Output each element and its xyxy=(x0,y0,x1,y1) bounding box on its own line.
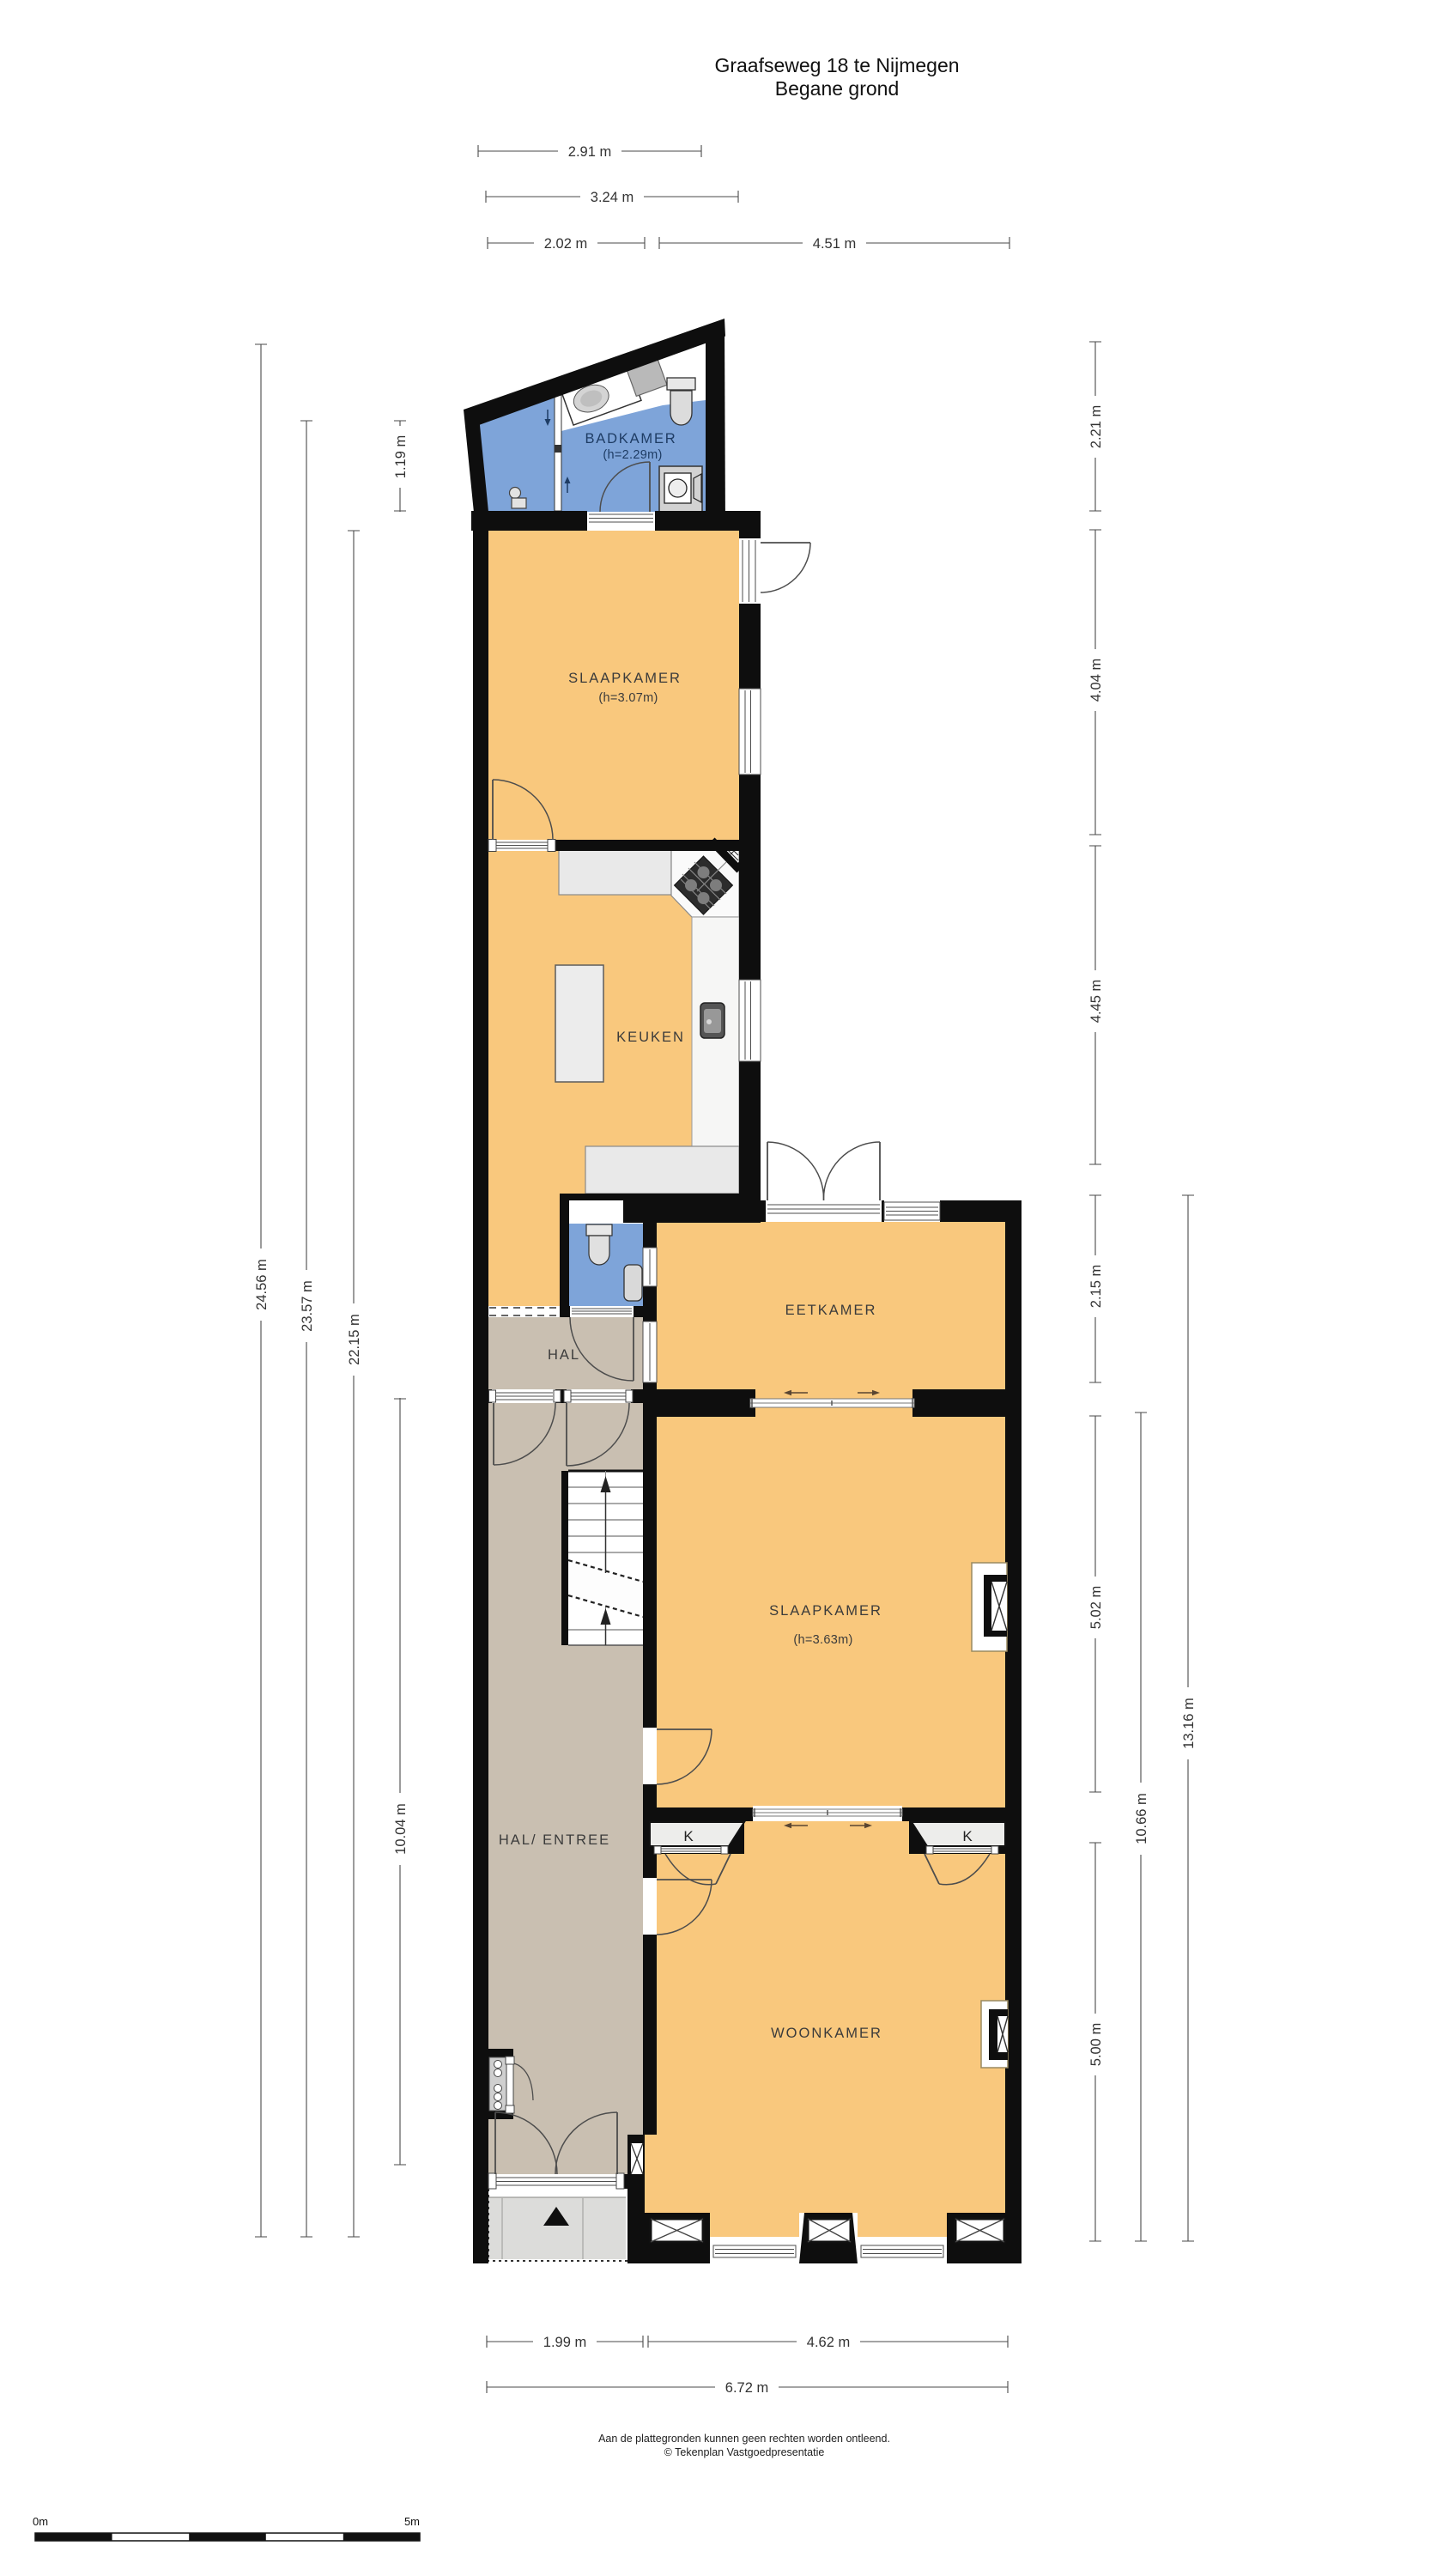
svg-text:KEUKEN: KEUKEN xyxy=(616,1030,685,1045)
svg-text:5m: 5m xyxy=(404,2515,420,2528)
svg-text:6.72 m: 6.72 m xyxy=(725,2380,768,2396)
svg-text:SLAAPKAMER: SLAAPKAMER xyxy=(568,671,682,686)
svg-text:23.57 m: 23.57 m xyxy=(300,1280,315,1332)
svg-text:2.02 m: 2.02 m xyxy=(544,236,587,252)
svg-text:1.99 m: 1.99 m xyxy=(543,2335,586,2350)
svg-text:4.62 m: 4.62 m xyxy=(807,2335,850,2350)
svg-text:K: K xyxy=(962,1828,973,1844)
svg-text:HAL: HAL xyxy=(548,1347,580,1363)
svg-text:5.02 m: 5.02 m xyxy=(1088,1586,1104,1629)
svg-text:WOONKAMER: WOONKAMER xyxy=(771,2026,882,2041)
svg-text:Aan de plattegronden kunnen ge: Aan de plattegronden kunnen geen rechten… xyxy=(598,2433,890,2445)
svg-text:4.45 m: 4.45 m xyxy=(1088,980,1104,1023)
svg-text:Begane grond: Begane grond xyxy=(775,77,900,100)
svg-text:5.00 m: 5.00 m xyxy=(1088,2023,1104,2066)
svg-text:HAL/ ENTREE: HAL/ ENTREE xyxy=(499,1832,610,1848)
svg-text:EETKAMER: EETKAMER xyxy=(785,1303,877,1318)
svg-text:© Tekenplan Vastgoedpresentati: © Tekenplan Vastgoedpresentatie xyxy=(664,2446,825,2458)
svg-text:(h=3.63m): (h=3.63m) xyxy=(793,1633,852,1647)
svg-text:10.66 m: 10.66 m xyxy=(1134,1793,1149,1844)
svg-text:1.19 m: 1.19 m xyxy=(393,435,409,478)
svg-text:13.16 m: 13.16 m xyxy=(1181,1698,1197,1749)
svg-text:2.15 m: 2.15 m xyxy=(1088,1265,1104,1308)
svg-text:(h=3.07m): (h=3.07m) xyxy=(598,691,658,705)
svg-text:22.15 m: 22.15 m xyxy=(347,1314,362,1365)
svg-text:10.04 m: 10.04 m xyxy=(393,1803,409,1855)
svg-text:BADKAMER: BADKAMER xyxy=(585,431,676,447)
svg-text:0m: 0m xyxy=(33,2515,48,2528)
svg-text:(h=2.29m): (h=2.29m) xyxy=(603,448,662,462)
svg-text:4.51 m: 4.51 m xyxy=(813,236,856,252)
svg-text:2.21 m: 2.21 m xyxy=(1088,405,1104,448)
svg-text:4.04 m: 4.04 m xyxy=(1088,659,1104,702)
svg-text:K: K xyxy=(683,1828,694,1844)
svg-text:SLAAPKAMER: SLAAPKAMER xyxy=(769,1603,882,1619)
svg-text:3.24 m: 3.24 m xyxy=(591,190,634,205)
svg-text:2.91 m: 2.91 m xyxy=(568,144,611,160)
svg-text:24.56 m: 24.56 m xyxy=(254,1259,270,1310)
svg-text:Graafseweg 18 te Nijmegen: Graafseweg 18 te Nijmegen xyxy=(714,54,959,76)
